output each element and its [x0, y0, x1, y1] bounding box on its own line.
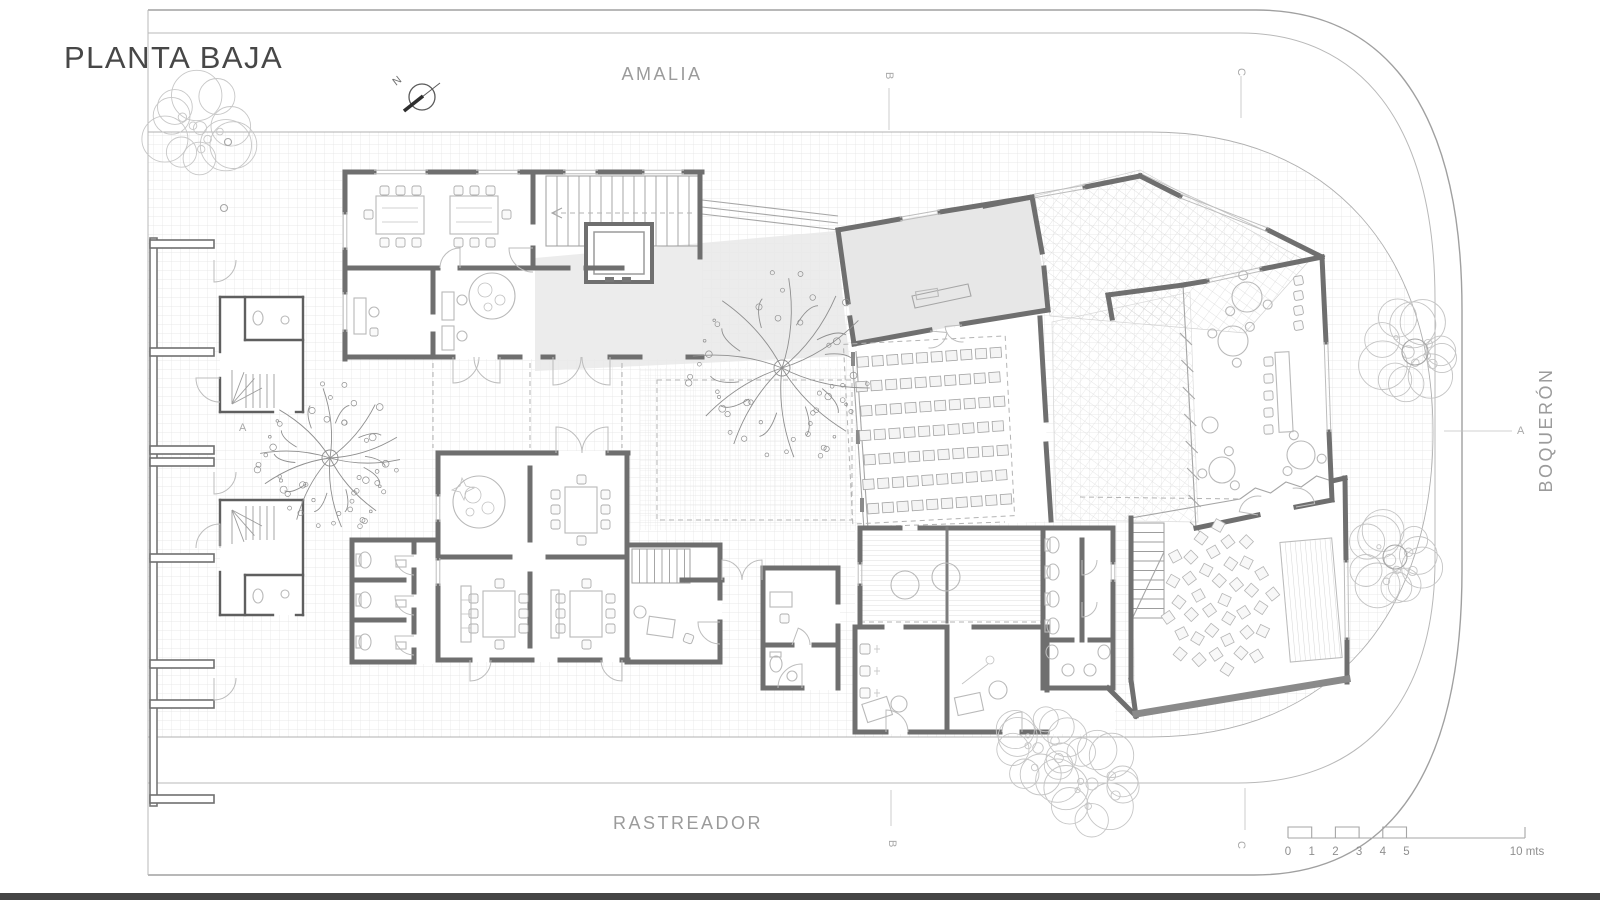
drawing-sheet: PLANTA BAJA AMALIA RASTREADOR BOQUERÓN B… — [0, 0, 1600, 900]
floor-plan-svg: PLANTA BAJA AMALIA RASTREADOR BOQUERÓN B… — [0, 0, 1600, 900]
page-title: PLANTA BAJA — [64, 40, 283, 75]
section-marker-a-right: A — [1517, 425, 1525, 437]
sheet-bottom-bar — [0, 893, 1600, 900]
roof-hatch-east-court — [1052, 292, 1198, 522]
north-letter: N — [390, 74, 404, 88]
section-marker-c-top: C — [1235, 68, 1247, 76]
scale-tick: 5 — [1403, 846, 1409, 858]
street-label-right: BOQUERÓN — [1535, 367, 1556, 492]
street-label-top: AMALIA — [621, 64, 702, 84]
section-marker-b-bottom: B — [886, 840, 898, 847]
stair-block-plate — [627, 543, 722, 664]
deck-room-east — [949, 530, 1043, 622]
scale-tick: 2 — [1332, 846, 1338, 858]
street-label-bottom: RASTREADOR — [613, 813, 763, 833]
scale-tick: 3 — [1356, 846, 1362, 858]
north-arrow-icon: N — [390, 74, 440, 111]
section-marker-b-top: B — [883, 72, 895, 79]
scale-tick: 0 — [1285, 846, 1291, 858]
section-marker-a-left: A — [239, 422, 247, 434]
scale-end-label: 10 mts — [1510, 846, 1545, 858]
section-marker-c-bottom: C — [1235, 841, 1247, 849]
scale-tick: 4 — [1380, 846, 1387, 858]
scale-bar: 01234510 mts — [1285, 827, 1545, 858]
scale-tick: 1 — [1308, 846, 1314, 858]
